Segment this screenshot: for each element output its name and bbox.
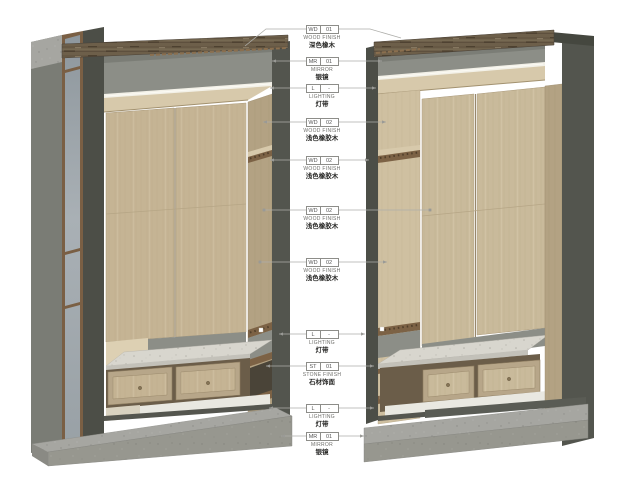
callout-tag-box: ST01 xyxy=(306,362,339,371)
callout-tag-box: WD02 xyxy=(306,206,339,215)
callout-material-label: LIGHTING xyxy=(284,94,360,100)
callout-l--: L-LIGHTING灯带 xyxy=(284,330,360,354)
callout-tag-box: L- xyxy=(306,404,339,413)
callout-code: WD xyxy=(307,157,321,164)
callout-code: WD xyxy=(307,259,321,266)
callout-wd-02: WD02WOOD FINISH浅色橡胶木 xyxy=(284,258,360,282)
callout-material-label-cn: 深色橡木 xyxy=(284,42,360,49)
callout-st-01: ST01STONE FINISH石材饰面 xyxy=(284,362,360,386)
callout-l--: L-LIGHTING灯带 xyxy=(284,84,360,108)
callout-code: WD xyxy=(307,119,321,126)
callout-material-label-cn: 浅色橡胶木 xyxy=(284,173,360,180)
callout-material-label: LIGHTING xyxy=(284,340,360,346)
callout-material-label-cn: 灯带 xyxy=(284,347,360,354)
callout-mr-01: MR01MIRROR银镜 xyxy=(284,432,360,456)
callout-tag-box: WD02 xyxy=(306,156,339,165)
callout-code: L xyxy=(307,331,321,338)
callout-tag-box: MR01 xyxy=(306,432,339,441)
callout-wd-02: WD02WOOD FINISH浅色橡胶木 xyxy=(284,206,360,230)
callout-material-label: LIGHTING xyxy=(284,414,360,420)
callout-code: MR xyxy=(307,58,321,65)
callout-material-label: STONE FINISH xyxy=(284,372,360,378)
callout-material-label-cn: 浅色橡胶木 xyxy=(284,135,360,142)
callout-code: MR xyxy=(307,433,321,440)
callout-number: 01 xyxy=(321,433,338,440)
callout-material-label: WOOD FINISH xyxy=(284,216,360,222)
callout-code: L xyxy=(307,405,321,412)
callout-number: 01 xyxy=(321,58,338,65)
callout-wd-02: WD02WOOD FINISH浅色橡胶木 xyxy=(284,156,360,180)
callout-material-label: MIRROR xyxy=(284,67,360,73)
callout-tag-box: L- xyxy=(306,330,339,339)
callout-number: - xyxy=(321,331,338,338)
callout-number: 02 xyxy=(321,207,338,214)
callout-number: 02 xyxy=(321,157,338,164)
callout-code: L xyxy=(307,85,321,92)
callout-mr-01: MR01MIRROR银镜 xyxy=(284,57,360,81)
callout-material-label-cn: 银镜 xyxy=(284,74,360,81)
callout-labels-layer: WD01WOOD FINISH深色橡木MR01MIRROR银镜L-LIGHTIN… xyxy=(0,0,618,483)
callout-tag-box: WD02 xyxy=(306,118,339,127)
callout-number: - xyxy=(321,405,338,412)
callout-material-label: WOOD FINISH xyxy=(284,35,360,41)
drawing-canvas: WD01WOOD FINISH深色橡木MR01MIRROR银镜L-LIGHTIN… xyxy=(0,0,618,483)
callout-number: - xyxy=(321,85,338,92)
callout-material-label: WOOD FINISH xyxy=(284,268,360,274)
callout-tag-box: WD01 xyxy=(306,25,339,34)
callout-material-label-cn: 石材饰面 xyxy=(284,379,360,386)
callout-material-label: WOOD FINISH xyxy=(284,166,360,172)
callout-number: 01 xyxy=(321,26,338,33)
callout-material-label: WOOD FINISH xyxy=(284,128,360,134)
callout-l--: L-LIGHTING灯带 xyxy=(284,404,360,428)
callout-material-label: MIRROR xyxy=(284,442,360,448)
callout-material-label-cn: 银镜 xyxy=(284,449,360,456)
callout-number: 02 xyxy=(321,119,338,126)
callout-number: 02 xyxy=(321,259,338,266)
callout-tag-box: MR01 xyxy=(306,57,339,66)
callout-tag-box: WD02 xyxy=(306,258,339,267)
callout-wd-01: WD01WOOD FINISH深色橡木 xyxy=(284,25,360,49)
callout-code: ST xyxy=(307,363,321,370)
callout-material-label-cn: 灯带 xyxy=(284,421,360,428)
callout-code: WD xyxy=(307,26,321,33)
callout-tag-box: L- xyxy=(306,84,339,93)
callout-number: 01 xyxy=(321,363,338,370)
callout-material-label-cn: 灯带 xyxy=(284,101,360,108)
callout-material-label-cn: 浅色橡胶木 xyxy=(284,223,360,230)
callout-code: WD xyxy=(307,207,321,214)
callout-wd-02: WD02WOOD FINISH浅色橡胶木 xyxy=(284,118,360,142)
callout-material-label-cn: 浅色橡胶木 xyxy=(284,275,360,282)
